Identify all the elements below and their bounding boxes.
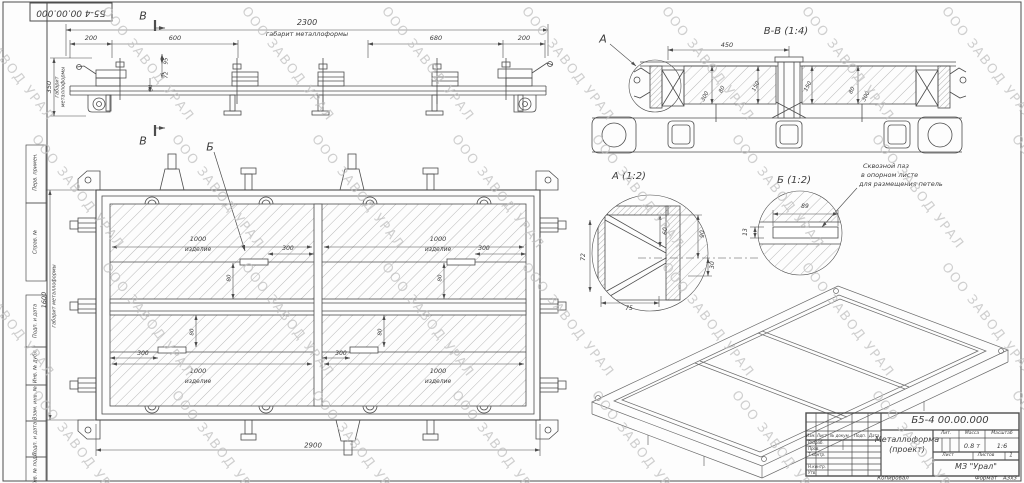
section-mark-v-top: В xyxy=(139,11,147,22)
dim-89: 89 xyxy=(801,204,809,210)
row-tkontr: Т.контр. xyxy=(808,453,825,457)
frame-label-inv-dubl: Инв. № дубл. xyxy=(34,349,39,383)
dim-75: 75 xyxy=(625,306,633,312)
row-razrab: Разраб. xyxy=(808,441,824,445)
cell-dim-1000-br: 1000 xyxy=(430,368,447,375)
slot-dim-80-tr: 80 xyxy=(438,275,444,282)
part-name-line-2: (проект) xyxy=(889,446,925,454)
detail-b-title: Б (1:2) xyxy=(777,176,811,186)
lit-header: Лит. xyxy=(941,432,951,437)
dim-overall-caption: габарит металлоформы xyxy=(266,31,348,38)
detail-a xyxy=(590,195,758,311)
frame-label-vzam-inv: Взам. инв. № xyxy=(34,386,39,420)
clamp-assembly xyxy=(77,58,554,104)
col-izm: Изм. xyxy=(806,434,815,438)
plan-view xyxy=(46,154,566,456)
dim-height-350: 350 xyxy=(46,81,53,93)
cell-dim-1000-bl: 1000 xyxy=(190,368,207,375)
dim-450: 450 xyxy=(721,42,733,49)
copied-label: Копировал xyxy=(877,476,908,482)
dim-680: 680 xyxy=(430,35,442,42)
slot-dim-300-br: 300 xyxy=(335,351,346,357)
drawing-sheet: Б5-4 00.00.000Перв. примен.Справ. №Подп.… xyxy=(0,0,1024,483)
frame-label-podp-data-1: Подп. и дата xyxy=(34,304,39,338)
sheets-label: Листов xyxy=(978,454,995,459)
row-nkontr: Н.контр. xyxy=(808,465,826,469)
row-prov: Пров. xyxy=(808,447,820,451)
note-line-3: для размещения петель xyxy=(859,181,943,188)
note-line-2: в опорном листе xyxy=(861,172,918,179)
cell-caption-tr: изделие xyxy=(425,247,451,253)
cell-dim-1000-tl: 1000 xyxy=(190,236,207,243)
frame-label-inv-podl: Инв. № подл. xyxy=(34,452,39,483)
height-caption-2: металлоформы xyxy=(62,67,67,108)
dim-plan-width: 1600 xyxy=(41,292,48,309)
detail-mark-b: Б xyxy=(206,142,214,153)
slot-dim-80-tl: 80 xyxy=(227,275,233,282)
dim-overall-length: 2300 xyxy=(297,19,317,27)
designation: Б5-4 00.00.000 xyxy=(911,416,988,426)
dim-200-right: 200 xyxy=(518,35,530,42)
corner-stamp-code: Б5-4 00.00.000 xyxy=(36,8,106,17)
slot-dim-300-tr: 300 xyxy=(478,246,489,252)
part-name-line-1: Металлоформа xyxy=(875,436,939,444)
section-bb xyxy=(592,44,966,153)
col-docnum: № докум. xyxy=(830,434,850,438)
slot-dim-80-br: 80 xyxy=(378,329,384,336)
plan-width-caption: габарит металлоформы xyxy=(53,264,58,327)
row-utv: Утв. xyxy=(808,471,816,475)
col-podp: Подп. xyxy=(854,434,866,438)
company: МЗ "Урал" xyxy=(955,463,997,471)
detail-b xyxy=(750,188,857,276)
detail-a-title: А (1:2) xyxy=(612,172,646,182)
slot-dim-300-tl: 300 xyxy=(282,246,293,252)
dim-60: 60 xyxy=(663,227,669,235)
format-value: А3х3 xyxy=(1003,476,1017,482)
dim-72: 72 xyxy=(581,253,587,261)
sheet-label: Лист xyxy=(942,454,953,459)
cell-caption-tl: изделие xyxy=(185,247,211,253)
dim-600: 600 xyxy=(169,35,181,42)
frame-label-perv-primen: Перв. примен. xyxy=(34,153,39,191)
col-list: Лист xyxy=(817,434,827,438)
scale-header: Масштаб xyxy=(991,432,1012,437)
mass-value: 0.8 т xyxy=(964,443,980,450)
frame-label-sprav-no: Справ. № xyxy=(34,230,39,254)
slot-dim-80-bl: 80 xyxy=(190,329,196,336)
mass-header: Масса xyxy=(965,432,979,437)
dim-90: 90 xyxy=(700,230,706,238)
dim-84: 84 xyxy=(149,85,155,92)
detail-mark-a: А xyxy=(599,34,607,45)
slot-dim-300-bl: 300 xyxy=(137,351,148,357)
dim-30: 30 xyxy=(710,261,716,269)
section-title: В-В (1:4) xyxy=(764,27,808,37)
dim-95: 95 xyxy=(164,58,170,65)
cell-dim-1000-tr: 1000 xyxy=(430,236,447,243)
drawing-linework xyxy=(0,0,1024,483)
scale-value: 1:6 xyxy=(997,443,1007,450)
note-line-1: Сквозной паз xyxy=(863,163,909,170)
dim-72: 72 xyxy=(164,72,170,79)
format-label: Формат xyxy=(975,476,997,482)
sheets-value: 1 xyxy=(1009,453,1013,459)
dim-200-left: 200 xyxy=(85,35,97,42)
dim-plan-length: 2900 xyxy=(304,443,322,450)
section-mark-v-bottom: В xyxy=(139,136,147,147)
col-data: Дата xyxy=(869,434,879,438)
cell-caption-bl: изделие xyxy=(185,379,211,385)
dim-13: 13 xyxy=(743,228,749,236)
cell-caption-br: изделие xyxy=(425,379,451,385)
isometric-view xyxy=(592,286,1008,478)
